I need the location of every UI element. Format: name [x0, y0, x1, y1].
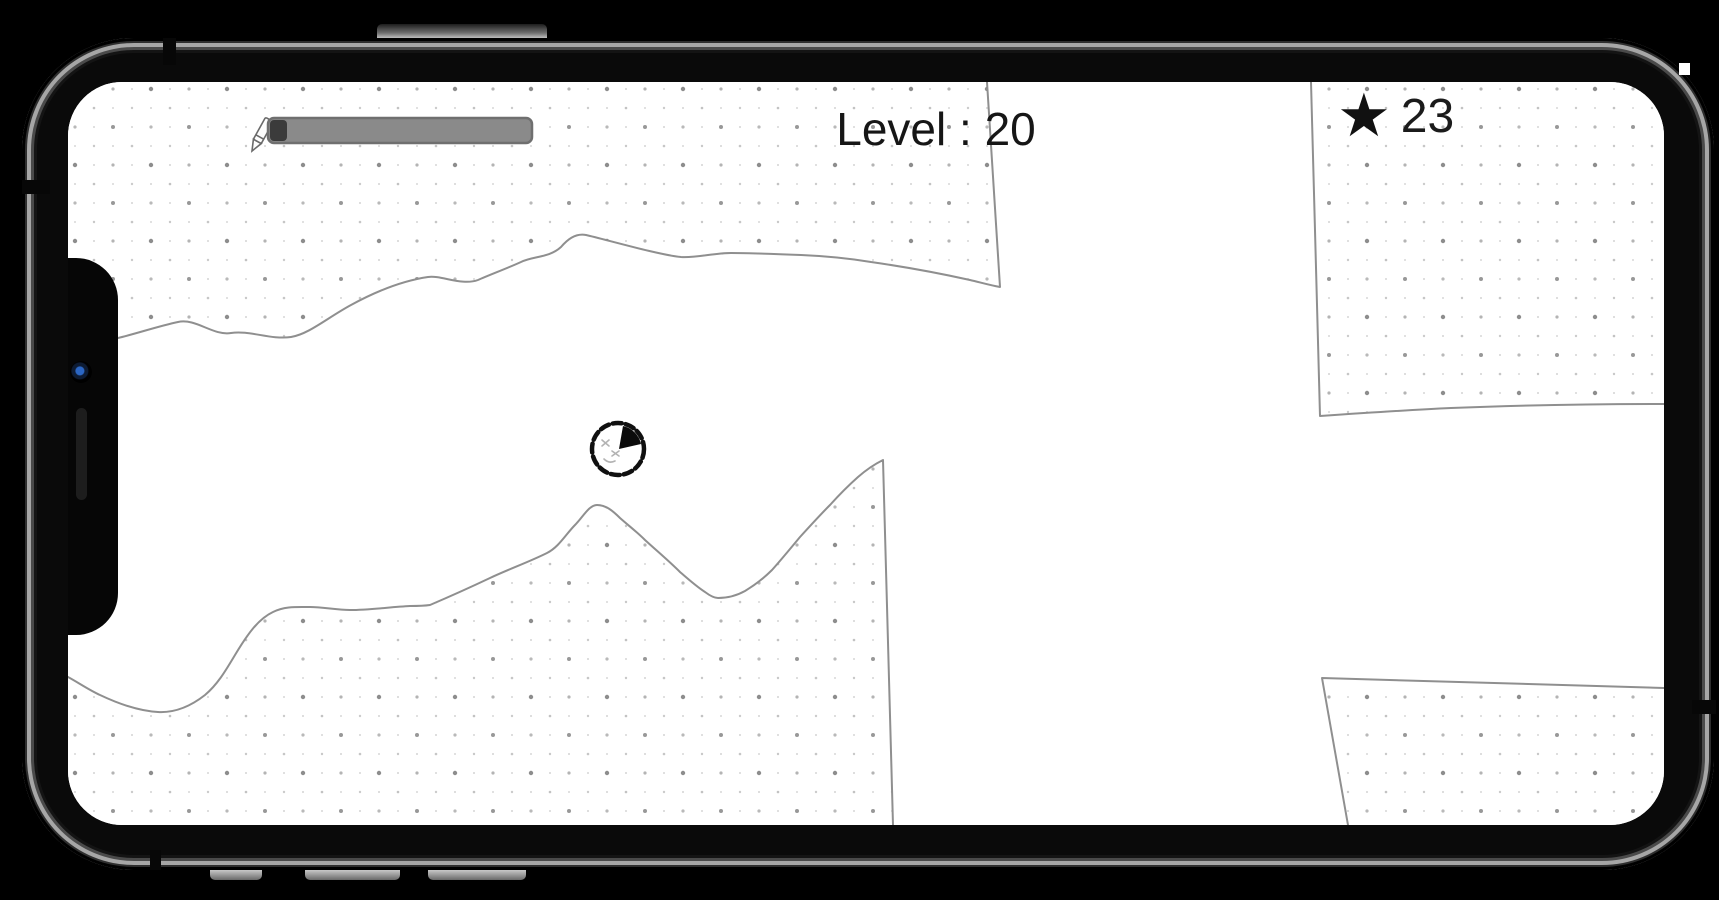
- front-camera-icon: [70, 361, 92, 383]
- ink-meter-track: [268, 118, 532, 143]
- star-count: 23: [1401, 89, 1454, 144]
- speaker-grille-icon: [76, 408, 87, 500]
- game-screen[interactable]: Level : 20 ★ 23: [68, 82, 1664, 825]
- ink-meter-used: [270, 120, 287, 141]
- antenna-line: [1692, 700, 1716, 714]
- star-counter: ★ 23: [1337, 84, 1454, 148]
- terrain-bottom-left: [68, 460, 893, 825]
- phone-frame: Level : 20 ★ 23: [22, 38, 1714, 870]
- character-body[interactable]: [592, 423, 644, 475]
- antenna-line: [22, 180, 50, 194]
- notch: [68, 258, 118, 635]
- stage: Level : 20 ★ 23: [0, 0, 1719, 900]
- player-character[interactable]: [592, 423, 644, 475]
- screenshot-artifact: [1679, 63, 1690, 75]
- antenna-line: [163, 38, 176, 65]
- star-icon: ★: [1337, 86, 1391, 146]
- terrain-bottom-right: [1322, 678, 1664, 825]
- game-canvas[interactable]: [68, 82, 1664, 825]
- level-label: Level : 20: [836, 102, 1035, 156]
- antenna-line: [150, 850, 161, 870]
